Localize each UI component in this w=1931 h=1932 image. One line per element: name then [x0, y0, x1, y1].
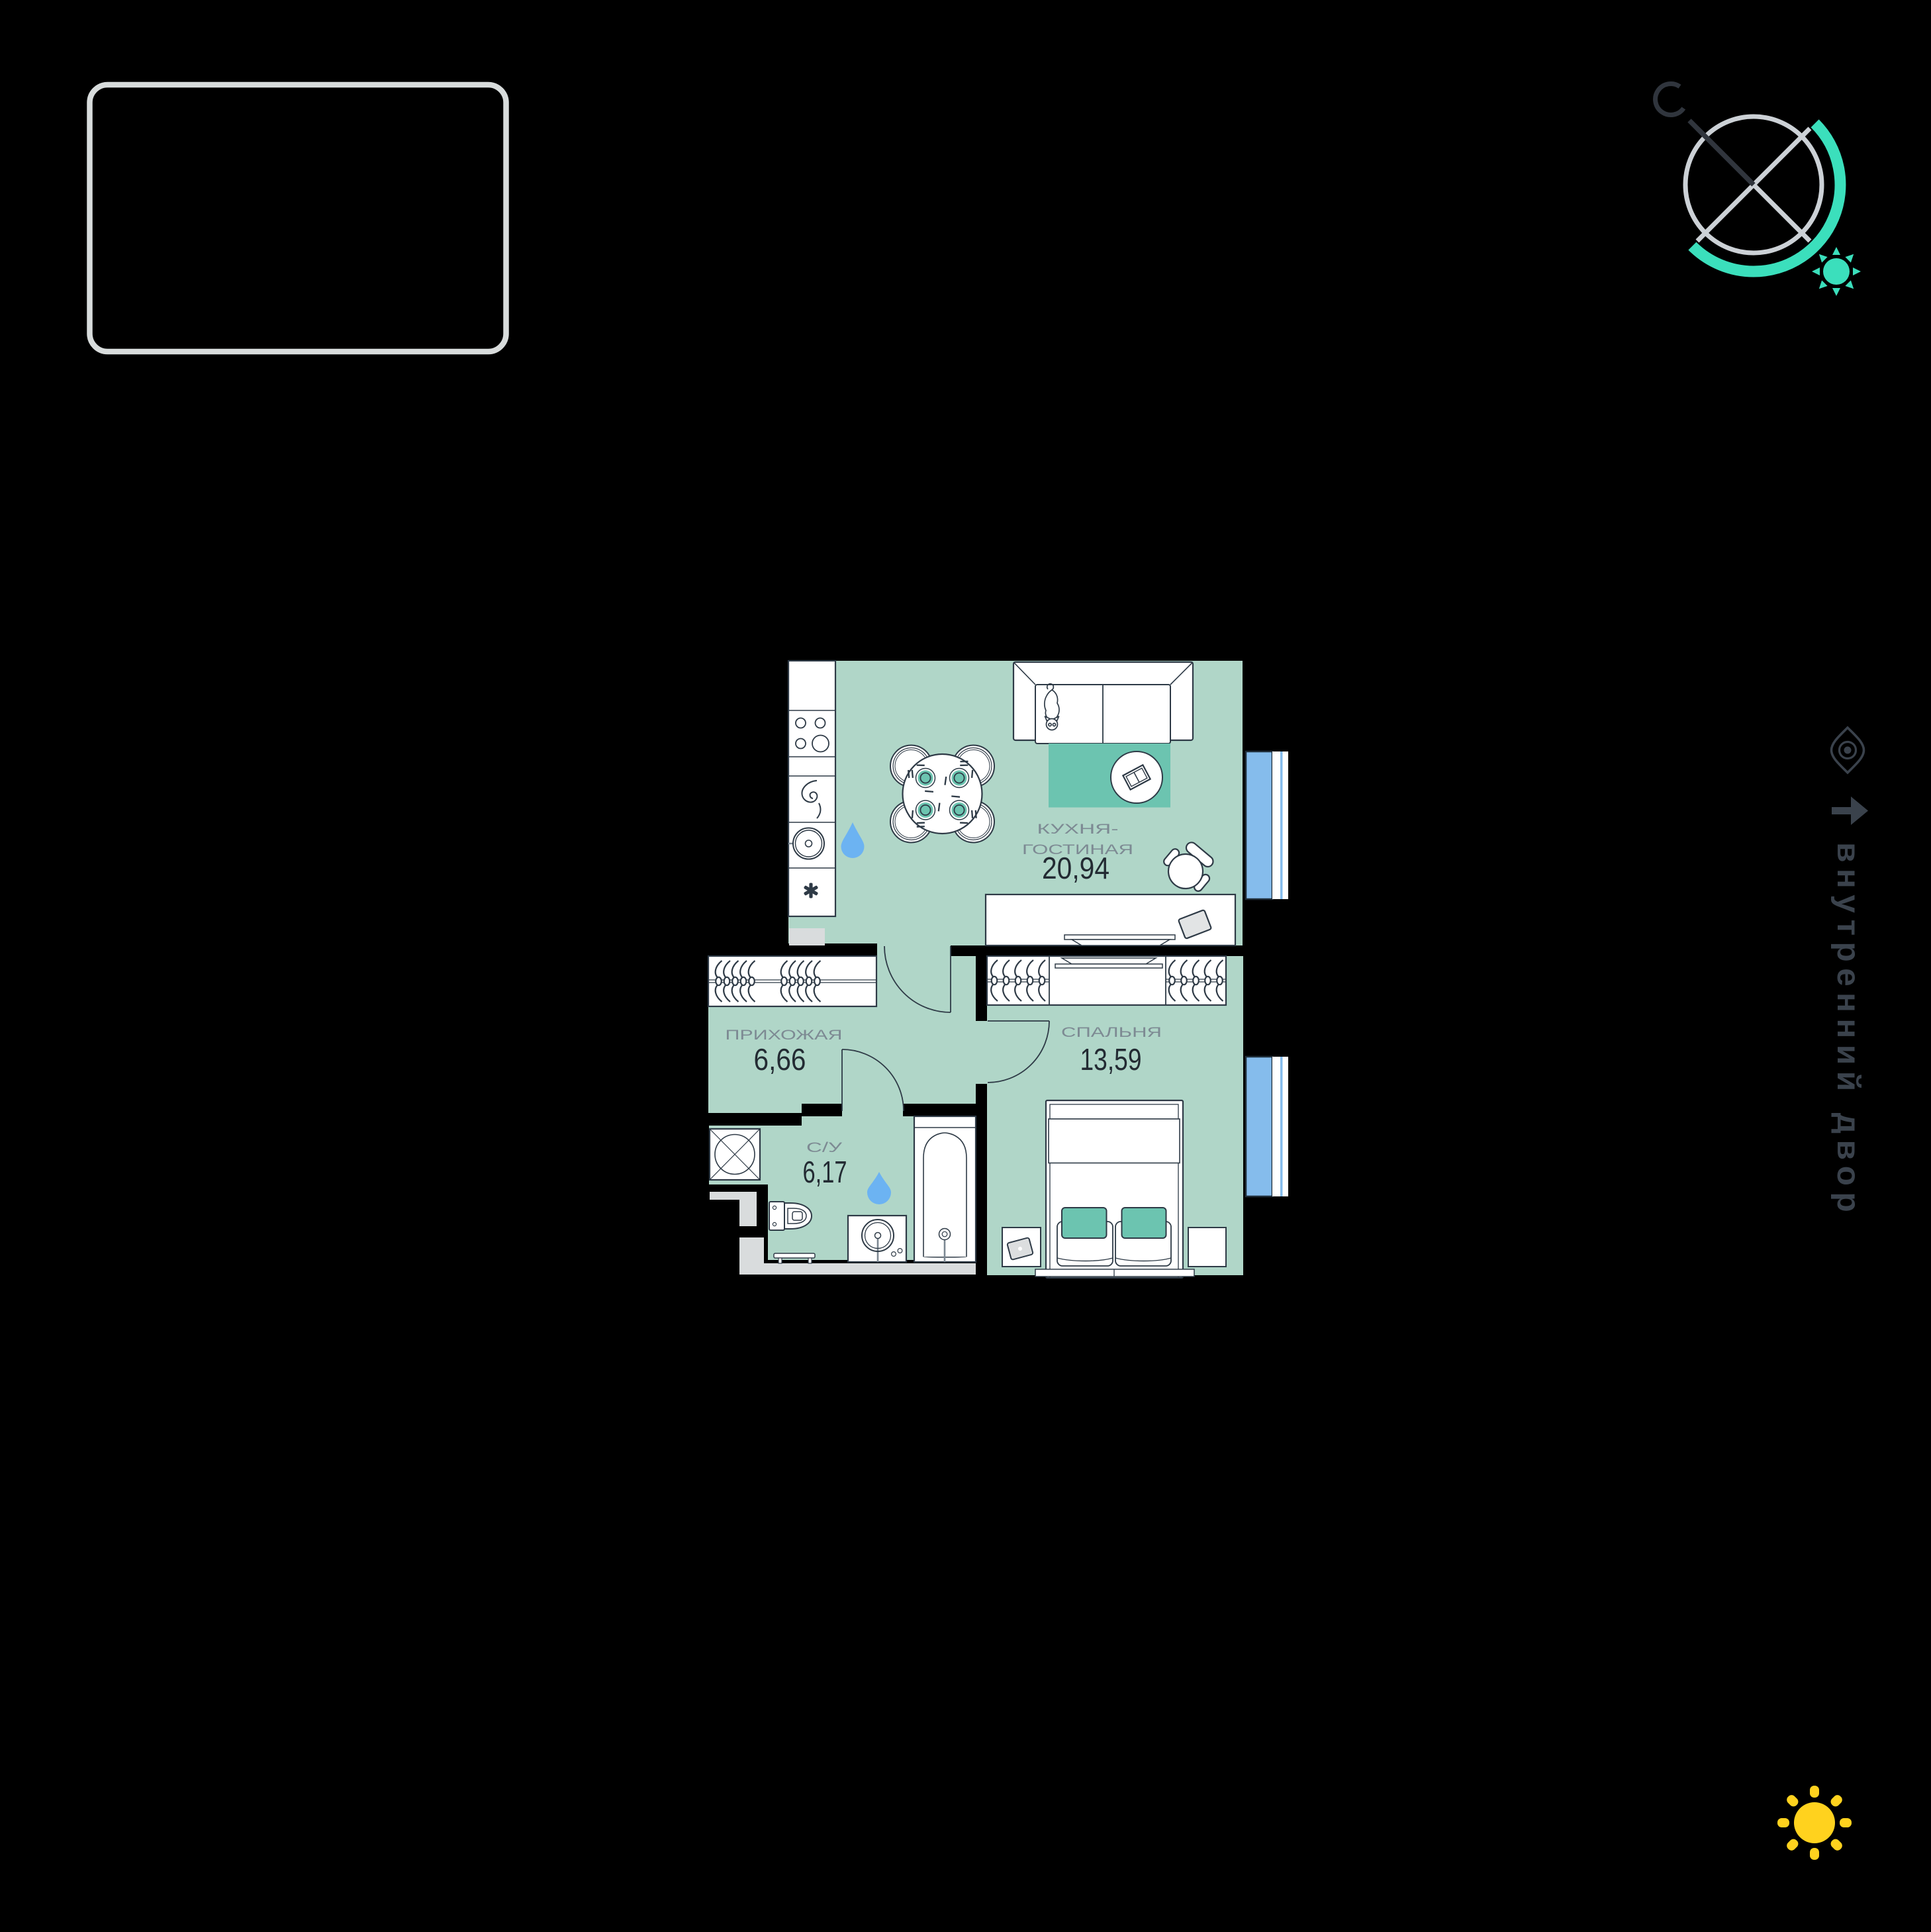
- svg-text:ПРИХОЖАЯ: ПРИХОЖАЯ: [726, 1028, 843, 1043]
- svg-text:внутренний двор: внутренний двор: [1830, 842, 1865, 1218]
- svg-text:20,94: 20,94: [1042, 851, 1109, 885]
- svg-text:С/У: С/У: [806, 1140, 843, 1155]
- svg-text:6,66: 6,66: [754, 1042, 806, 1077]
- svg-text:13,59: 13,59: [1080, 1042, 1142, 1077]
- svg-text:6,17: 6,17: [803, 1155, 847, 1189]
- svg-text:КУХНЯ-: КУХНЯ-: [1037, 822, 1119, 837]
- svg-text:СПАЛЬНЯ: СПАЛЬНЯ: [1061, 1025, 1162, 1040]
